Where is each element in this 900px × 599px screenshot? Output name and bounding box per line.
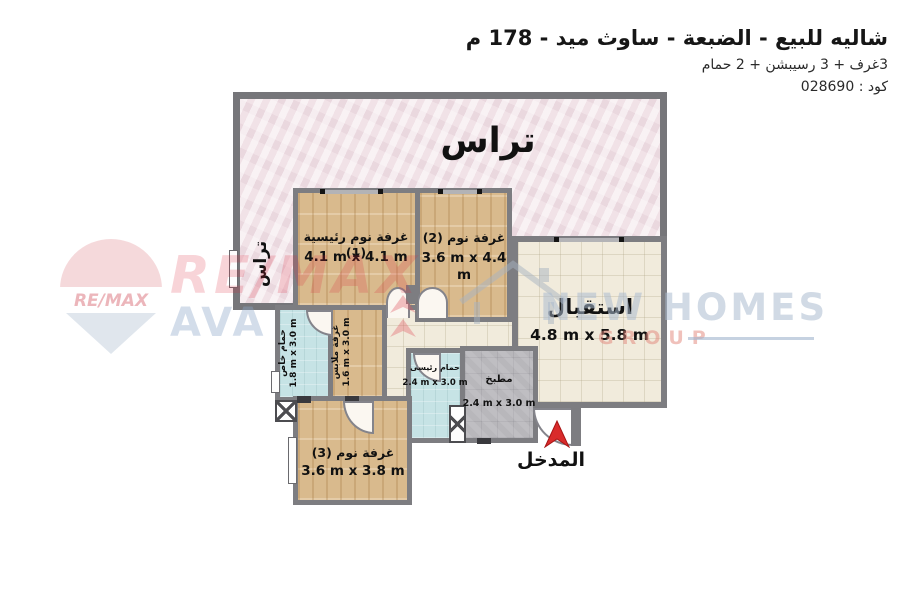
dressing-dims: 1.6 m x 3.0 m <box>342 318 352 387</box>
private-bathroom-name: حمام خاص <box>278 329 288 377</box>
room-kitchen <box>460 346 538 443</box>
dressing-label: غرفة ملابس 1.6 m x 3.0 m <box>331 304 381 400</box>
remax-balloon-watermark: RE/MAX <box>52 233 170 355</box>
terrace-side-label: تراس <box>241 219 281 309</box>
main-bathroom-dims: 2.4 m x 3.0 m <box>401 378 469 389</box>
reception-dims: 4.8 m x 5.8 m <box>512 326 667 345</box>
entrance-label: المدخل <box>505 449 597 473</box>
balloon-text: RE/MAX <box>74 291 149 311</box>
main-bathroom-name: حمام رئيسى <box>403 363 467 373</box>
kitchen-dims: 2.4 m x 3.0 m <box>460 398 538 410</box>
wall-stub <box>406 285 418 304</box>
listing-subtitle: 3غرف + 3 رسيبشن + 2 حمام <box>388 57 888 73</box>
window-cap <box>438 189 443 194</box>
shaft-box <box>275 400 297 422</box>
terrace-label: تراس <box>418 120 558 164</box>
bedroom-3-dims: 3.6 m x 3.8 m <box>296 463 410 480</box>
window-cap <box>320 189 325 194</box>
window <box>229 250 238 288</box>
reception-name: استقبال <box>520 294 660 320</box>
door-arc-bedroom-2 <box>417 287 448 318</box>
window-cap <box>554 237 559 242</box>
door-arc-entrance <box>533 408 573 446</box>
shaft-box <box>449 405 466 443</box>
window-cap <box>378 189 383 194</box>
listing-title: شاليه للبيع - الضبعة - ساوث ميد - 178 م <box>288 26 888 50</box>
private-bathroom-label: حمام خاص 1.8 m x 3.0 m <box>278 305 328 401</box>
window <box>322 190 382 194</box>
private-bathroom-dims: 1.8 m x 3.0 m <box>289 319 299 388</box>
bedroom-2-name: غرفة نوم (2) <box>418 230 510 246</box>
window-cap <box>619 237 624 242</box>
wall-stub <box>571 408 581 446</box>
floorplan-page: شاليه للبيع - الضبعة - ساوث ميد - 178 م … <box>0 0 900 599</box>
dressing-name: غرفة ملابس <box>331 325 341 380</box>
watermark-underline <box>688 337 814 340</box>
bedroom-2-dims: 3.6 m x 4.4 m <box>414 250 514 284</box>
bedroom-3-name: غرفة نوم (3) <box>298 445 408 461</box>
kitchen-name: مطبخ <box>462 374 536 387</box>
bedroom-1-dims: 4.1 m x 4.1 m <box>296 249 416 266</box>
window-cap <box>477 189 482 194</box>
window <box>440 190 480 194</box>
window <box>556 238 622 242</box>
vent-mark <box>477 438 491 444</box>
